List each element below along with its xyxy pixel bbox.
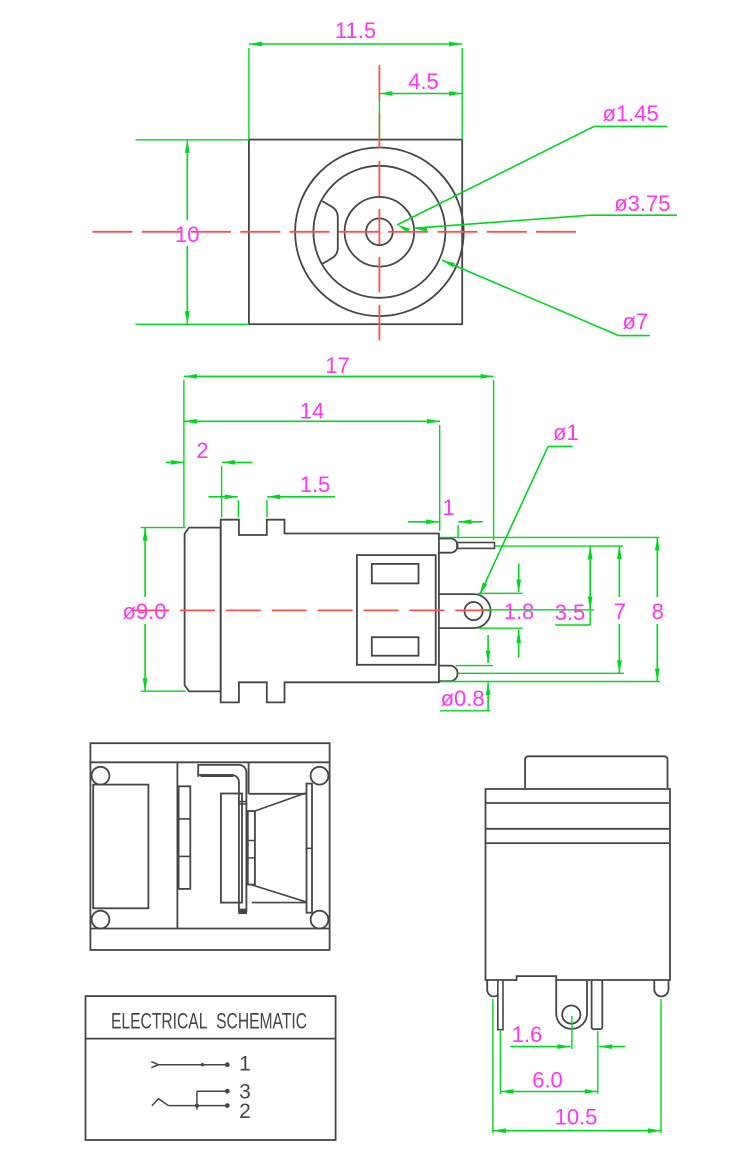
svg-text:1: 1 bbox=[239, 1053, 251, 1076]
svg-text:2: 2 bbox=[196, 438, 208, 463]
svg-text:ø0.8: ø0.8 bbox=[441, 686, 485, 711]
svg-text:2: 2 bbox=[239, 1100, 251, 1123]
svg-text:1.5: 1.5 bbox=[300, 472, 331, 497]
svg-text:ø9.0: ø9.0 bbox=[122, 599, 166, 624]
svg-text:ø7: ø7 bbox=[623, 309, 649, 334]
svg-text:10: 10 bbox=[175, 222, 199, 247]
svg-text:17: 17 bbox=[325, 353, 349, 378]
svg-text:8: 8 bbox=[652, 599, 664, 624]
svg-text:1.6: 1.6 bbox=[512, 1022, 543, 1047]
svg-text:ø3.75: ø3.75 bbox=[614, 191, 670, 216]
svg-text:11.5: 11.5 bbox=[335, 18, 376, 43]
svg-text:7: 7 bbox=[614, 599, 626, 624]
svg-text:ø1: ø1 bbox=[553, 420, 579, 445]
svg-text:14: 14 bbox=[300, 399, 324, 424]
svg-text:ELECTRICAL SCHEMATIC: ELECTRICAL SCHEMATIC bbox=[111, 1009, 307, 1034]
svg-text:ø1.45: ø1.45 bbox=[603, 101, 659, 126]
svg-text:4.5: 4.5 bbox=[408, 69, 439, 94]
svg-text:1: 1 bbox=[442, 495, 454, 520]
svg-text:6.0: 6.0 bbox=[532, 1068, 563, 1093]
svg-text:3.5: 3.5 bbox=[555, 600, 586, 625]
svg-text:10.5: 10.5 bbox=[555, 1105, 598, 1130]
svg-text:1.8: 1.8 bbox=[504, 599, 535, 624]
